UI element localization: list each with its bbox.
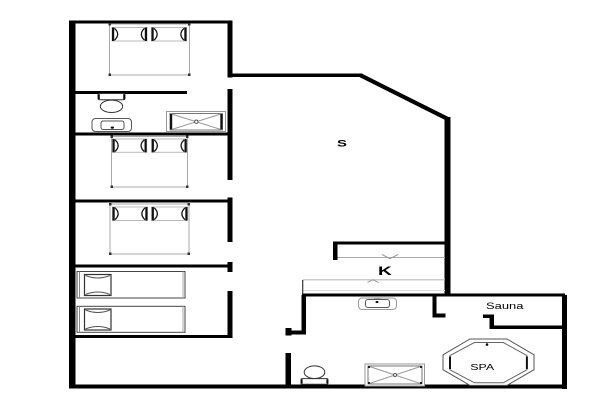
svg-text:SPA: SPA (470, 364, 494, 372)
svg-text:S: S (337, 139, 347, 149)
svg-text:Sauna: Sauna (486, 302, 524, 312)
svg-text:K: K (378, 265, 392, 278)
